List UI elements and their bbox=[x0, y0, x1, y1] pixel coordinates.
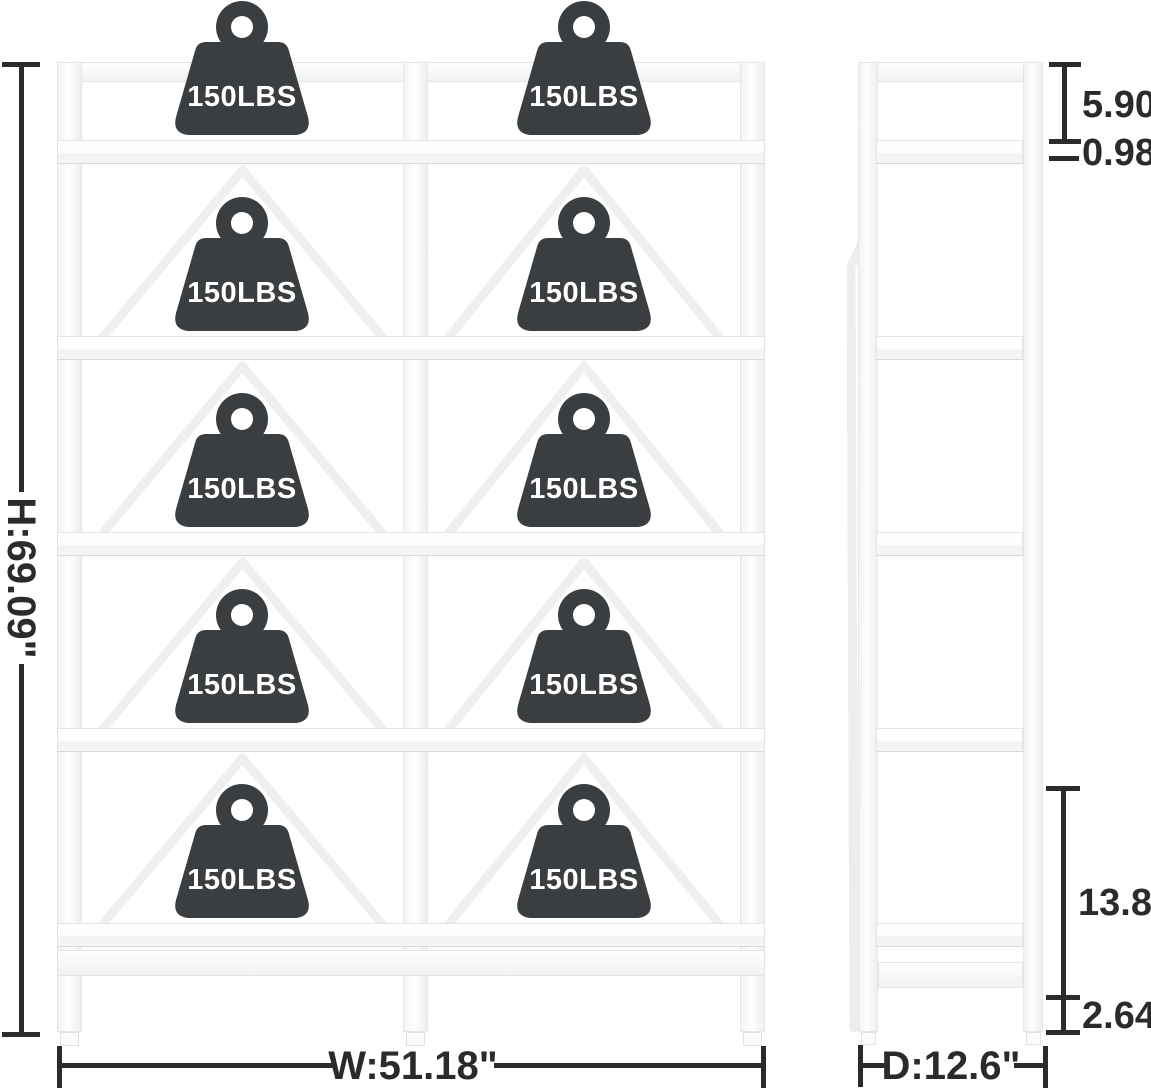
dimension-cap bbox=[1046, 1030, 1080, 1035]
height-dimension-label: H:69.09" bbox=[1, 448, 41, 708]
weight-capacity-icon: 150LBS bbox=[172, 588, 312, 728]
side-shelf-board-2 bbox=[876, 336, 1023, 360]
leg-foot-1 bbox=[60, 1032, 79, 1046]
shelf-board-1 bbox=[57, 140, 765, 164]
weight-handle-hole bbox=[573, 604, 595, 626]
weight-capacity-icon: 150LBS bbox=[514, 392, 654, 532]
weight-capacity-label: 150LBS bbox=[187, 864, 296, 896]
dimension-line bbox=[57, 1063, 333, 1068]
shelf-board-4 bbox=[57, 728, 765, 752]
weight-capacity-label: 150LBS bbox=[529, 473, 638, 505]
dimension-cap bbox=[1046, 786, 1080, 791]
shelf-board-2 bbox=[57, 336, 765, 360]
weight-capacity-icon: 150LBS bbox=[514, 196, 654, 336]
weight-capacity-label: 150LBS bbox=[529, 669, 638, 701]
weight-handle-hole bbox=[231, 799, 253, 821]
weight-handle-hole bbox=[231, 604, 253, 626]
depth-dimension-label: D:12.6" bbox=[831, 1046, 1071, 1086]
side-bottom-rail bbox=[878, 962, 1023, 988]
width-dimension-label: W:51.18" bbox=[293, 1046, 533, 1086]
dimension-line bbox=[19, 664, 24, 1036]
dimension-cap bbox=[1049, 62, 1081, 67]
dimension-cap bbox=[761, 1046, 766, 1088]
weight-handle-hole bbox=[573, 16, 595, 38]
weight-handle-hole bbox=[231, 212, 253, 234]
side-shelf-board-1 bbox=[876, 140, 1023, 164]
dimension-cap bbox=[1049, 139, 1081, 144]
side-shelf-board-4 bbox=[876, 728, 1023, 752]
weight-capacity-icon: 150LBS bbox=[514, 0, 654, 140]
dimension-cap bbox=[2, 1032, 40, 1037]
dimension-line bbox=[494, 1063, 766, 1068]
dimension-line bbox=[19, 62, 24, 492]
weight-capacity-label: 150LBS bbox=[529, 864, 638, 896]
shelf-board-5 bbox=[57, 923, 765, 947]
side-front-post bbox=[1023, 62, 1043, 1032]
shelf-thickness-dimension-label: 0.98" bbox=[1082, 134, 1151, 172]
weight-handle-hole bbox=[573, 408, 595, 430]
dimension-cap bbox=[1049, 156, 1079, 161]
weight-handle-hole bbox=[231, 408, 253, 430]
side-back-post bbox=[858, 62, 878, 1032]
weight-capacity-icon: 150LBS bbox=[172, 0, 312, 140]
product-dimension-diagram: 150LBS 150LBS 150LBS 150LBS bbox=[0, 0, 1151, 1088]
side-leg-foot-1 bbox=[861, 1032, 876, 1045]
weight-capacity-label: 150LBS bbox=[187, 473, 296, 505]
weight-capacity-label: 150LBS bbox=[529, 277, 638, 309]
weight-capacity-label: 150LBS bbox=[187, 277, 296, 309]
foot-height-dimension-label: 2.64" bbox=[1082, 997, 1151, 1035]
leg-foot-3 bbox=[743, 1032, 762, 1046]
bottom-spacing-dimension-label: 13.82" bbox=[1078, 884, 1151, 922]
side-shelf-board-3 bbox=[876, 532, 1023, 556]
weight-handle-hole bbox=[573, 799, 595, 821]
weight-capacity-icon: 150LBS bbox=[514, 783, 654, 923]
side-shelf-board-5 bbox=[876, 923, 1023, 947]
top-gap-dimension-label: 5.90" bbox=[1082, 86, 1151, 124]
side-leg-foot-2 bbox=[1026, 1032, 1041, 1045]
weight-capacity-label: 150LBS bbox=[187, 669, 296, 701]
bottom-front-rail bbox=[57, 950, 765, 976]
weight-handle-hole bbox=[573, 212, 595, 234]
weight-capacity-icon: 150LBS bbox=[172, 392, 312, 532]
weight-capacity-icon: 150LBS bbox=[514, 588, 654, 728]
dimension-cap bbox=[2, 62, 40, 67]
dimension-cap bbox=[57, 1046, 62, 1088]
dimension-cap bbox=[1046, 995, 1080, 1000]
weight-capacity-label: 150LBS bbox=[529, 81, 638, 113]
weight-handle-hole bbox=[231, 16, 253, 38]
side-top-rail bbox=[858, 62, 1043, 82]
weight-capacity-icon: 150LBS bbox=[172, 196, 312, 336]
weight-capacity-icon: 150LBS bbox=[172, 783, 312, 923]
shelf-board-3 bbox=[57, 532, 765, 556]
dimension-line bbox=[1062, 62, 1067, 142]
weight-capacity-label: 150LBS bbox=[187, 81, 296, 113]
